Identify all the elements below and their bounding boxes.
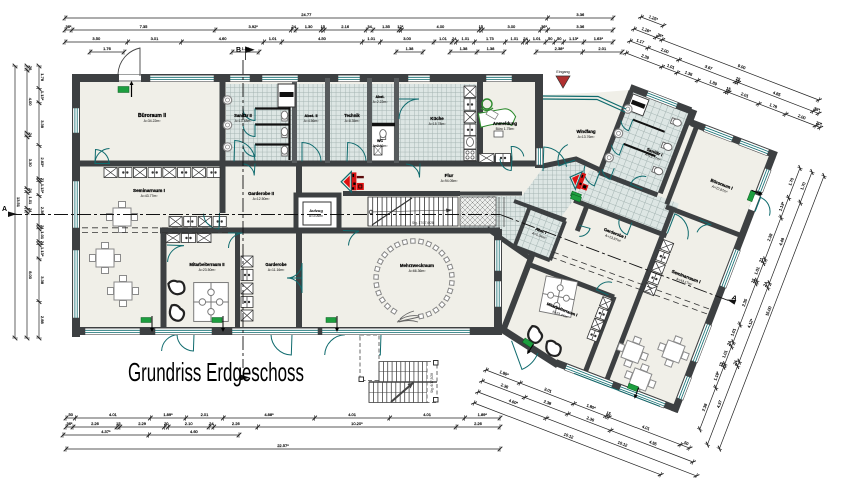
svg-text:1.13*: 1.13* <box>569 36 579 41</box>
svg-text:4.37*: 4.37* <box>101 429 111 434</box>
svg-text:2.10: 2.10 <box>185 421 194 426</box>
svg-text:15: 15 <box>479 24 484 29</box>
svg-text:3.92*: 3.92* <box>249 24 259 29</box>
svg-text:B: B <box>236 47 241 54</box>
svg-text:1.76: 1.76 <box>103 46 112 51</box>
svg-text:1.63*: 1.63* <box>594 36 604 41</box>
svg-text:1.01: 1.01 <box>40 231 45 240</box>
svg-text:1.38: 1.38 <box>460 46 469 51</box>
svg-text:26: 26 <box>28 66 33 71</box>
svg-text:13.51: 13.51 <box>16 197 21 208</box>
svg-text:3.38: 3.38 <box>40 120 45 129</box>
svg-text:24: 24 <box>523 36 528 41</box>
svg-text:2.38: 2.38 <box>40 207 45 216</box>
svg-text:Grundriss Erdgeschoss: Grundriss Erdgeschoss <box>128 357 304 387</box>
svg-text:Mehrzweckraum: Mehrzweckraum <box>400 263 434 268</box>
svg-text:1.35: 1.35 <box>382 24 391 29</box>
svg-text:3.36: 3.36 <box>576 24 585 29</box>
svg-text:4.01: 4.01 <box>109 412 118 417</box>
svg-text:20: 20 <box>164 421 169 426</box>
svg-text:1.13*: 1.13* <box>40 91 45 101</box>
svg-text:15: 15 <box>321 24 326 29</box>
svg-text:24: 24 <box>28 188 33 193</box>
svg-text:Stg. 6/17,5/28: Stg. 6/17,5/28 <box>430 373 434 393</box>
svg-text:A=94.05m²: A=94.05m² <box>441 179 459 183</box>
svg-text:1.13*: 1.13* <box>40 184 45 194</box>
svg-text:3.30: 3.30 <box>28 159 33 168</box>
svg-text:A=8.35m²: A=8.35m² <box>345 119 361 123</box>
svg-text:1.01: 1.01 <box>269 36 278 41</box>
svg-text:1.38: 1.38 <box>242 46 251 51</box>
svg-text:Garderobe: Garderobe <box>265 262 287 267</box>
svg-text:1.78: 1.78 <box>40 73 45 82</box>
svg-text:A=43.77m²: A=43.77m² <box>141 194 159 198</box>
svg-text:2.26: 2.26 <box>232 421 241 426</box>
svg-text:36*: 36* <box>541 24 547 29</box>
svg-text:7.35: 7.35 <box>140 24 149 29</box>
svg-text:2.01: 2.01 <box>201 412 210 417</box>
svg-text:4.01: 4.01 <box>423 412 432 417</box>
svg-text:10.20*: 10.20* <box>351 421 363 426</box>
svg-text:1.38: 1.38 <box>487 46 496 51</box>
svg-text:4.60: 4.60 <box>190 429 199 434</box>
svg-text:4.00: 4.00 <box>437 24 446 29</box>
svg-text:1.01: 1.01 <box>533 36 542 41</box>
svg-text:Stg. 17/17,6/28: Stg. 17/17,6/28 <box>412 221 434 225</box>
svg-text:24: 24 <box>28 133 33 138</box>
svg-text:12*: 12* <box>397 24 403 29</box>
svg-text:24: 24 <box>40 241 45 246</box>
svg-text:1.89*: 1.89* <box>478 412 488 417</box>
svg-text:1.73: 1.73 <box>486 36 495 41</box>
svg-text:2.29: 2.29 <box>138 421 147 426</box>
svg-text:2.26: 2.26 <box>91 421 100 426</box>
svg-text:4.50: 4.50 <box>318 36 327 41</box>
svg-text:15: 15 <box>116 421 121 426</box>
svg-text:3.00: 3.00 <box>403 36 412 41</box>
svg-text:A=13.76m²: A=13.76m² <box>578 135 596 139</box>
svg-text:2.63*: 2.63* <box>40 157 45 167</box>
svg-text:Technik: Technik <box>344 113 360 118</box>
svg-text:Windfang: Windfang <box>576 129 595 134</box>
svg-text:24: 24 <box>291 24 296 29</box>
svg-text:1.13*: 1.13* <box>40 247 45 257</box>
svg-text:A=34.22m²: A=34.22m² <box>144 119 162 123</box>
svg-text:Abst.: Abst. <box>376 95 385 99</box>
svg-text:24: 24 <box>209 421 214 426</box>
svg-text:4.60: 4.60 <box>219 36 228 41</box>
svg-text:Küche: Küche <box>430 116 444 121</box>
svg-text:1.01: 1.01 <box>439 36 448 41</box>
svg-text:3.01: 3.01 <box>151 36 160 41</box>
svg-text:A=11.16m²: A=11.16m² <box>268 268 285 272</box>
svg-text:A=12.50m²: A=12.50m² <box>253 197 271 201</box>
svg-text:Eingang: Eingang <box>556 70 569 74</box>
svg-text:3.36: 3.36 <box>576 12 585 17</box>
svg-text:A=23.50m²: A=23.50m² <box>199 268 217 272</box>
svg-text:2.16: 2.16 <box>341 24 350 29</box>
svg-text:22.57*: 22.57* <box>277 443 289 448</box>
svg-text:3.00: 3.00 <box>508 24 517 29</box>
svg-text:24: 24 <box>452 36 457 41</box>
svg-text:4.00: 4.00 <box>28 98 33 107</box>
svg-text:Garderobe II: Garderobe II <box>248 191 274 196</box>
svg-text:21: 21 <box>40 178 45 183</box>
svg-text:A=66.36m²: A=66.36m² <box>409 269 427 273</box>
svg-text:A=2.22m²: A=2.22m² <box>373 100 389 104</box>
svg-text:1.01: 1.01 <box>367 36 376 41</box>
svg-text:2.88: 2.88 <box>40 316 45 325</box>
svg-text:50: 50 <box>557 36 562 41</box>
svg-text:Seminarraum I: Seminarraum I <box>133 188 165 193</box>
svg-text:A=4.56m²: A=4.56m² <box>304 119 320 123</box>
svg-text:8.00: 8.00 <box>28 271 33 280</box>
svg-text:Aufzug: Aufzug <box>309 208 323 213</box>
svg-text:36*: 36* <box>65 24 71 29</box>
svg-text:Anmeldung: Anmeldung <box>493 121 517 126</box>
svg-text:2.01: 2.01 <box>598 46 607 51</box>
svg-text:Sanitär II: Sanitär II <box>234 113 252 118</box>
svg-text:24: 24 <box>40 225 45 230</box>
svg-text:2.38*: 2.38* <box>555 46 565 51</box>
svg-text:1.01: 1.01 <box>462 36 471 41</box>
svg-text:34: 34 <box>367 24 372 29</box>
svg-text:1.30: 1.30 <box>305 24 314 29</box>
svg-text:A=13.48m²: A=13.48m² <box>235 119 253 123</box>
svg-text:1.01: 1.01 <box>511 36 520 41</box>
svg-text:1.89*: 1.89* <box>163 412 173 417</box>
svg-text:A=15.78m²: A=15.78m² <box>429 122 447 126</box>
svg-text:3.50: 3.50 <box>92 36 101 41</box>
svg-text:24: 24 <box>28 208 33 213</box>
svg-text:4.88*: 4.88* <box>264 412 274 417</box>
svg-text:Flur: Flur <box>445 173 454 178</box>
svg-text:4.01: 4.01 <box>348 412 357 417</box>
svg-text:50: 50 <box>68 412 73 417</box>
svg-text:50: 50 <box>548 36 553 41</box>
svg-text:Büro 1.75m²: Büro 1.75m² <box>496 127 516 131</box>
svg-text:A: A <box>2 206 7 213</box>
svg-text:A=2.46m²: A=2.46m² <box>373 144 389 148</box>
svg-text:3.38: 3.38 <box>40 276 45 285</box>
svg-text:1.38: 1.38 <box>406 46 415 51</box>
svg-text:36*: 36* <box>66 421 72 426</box>
svg-text:2.26: 2.26 <box>474 421 483 426</box>
svg-text:24.77: 24.77 <box>301 12 312 17</box>
svg-text:Abst. II: Abst. II <box>304 113 317 118</box>
svg-text:Mitarbeiterraum II: Mitarbeiterraum II <box>189 262 224 267</box>
svg-text:1.01: 1.01 <box>28 197 33 206</box>
svg-text:WC: WC <box>377 139 383 143</box>
